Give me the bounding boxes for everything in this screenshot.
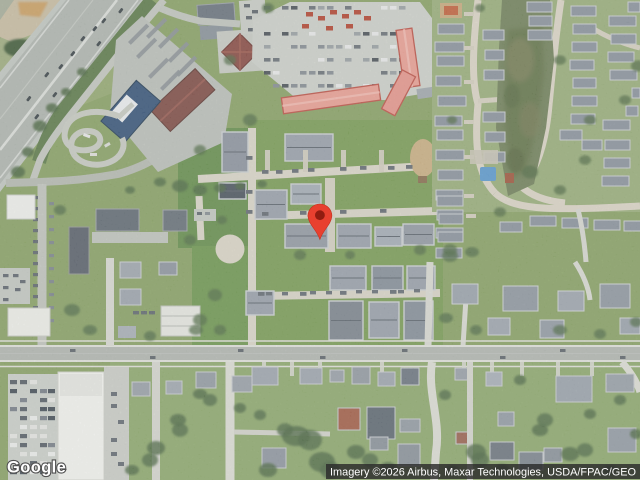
svg-text:Imagery ©2026 Airbus, Maxar Te: Imagery ©2026 Airbus, Maxar Technologies… bbox=[330, 467, 636, 479]
svg-text:Google: Google bbox=[7, 459, 66, 477]
